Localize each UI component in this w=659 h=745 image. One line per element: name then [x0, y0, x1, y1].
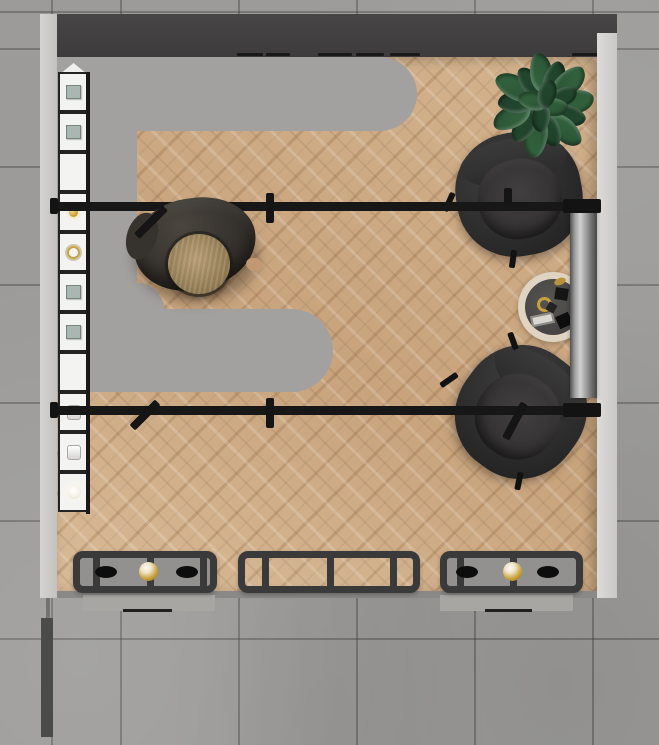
metal-console: [570, 207, 597, 398]
display-item-shoe: [176, 566, 198, 578]
display-table-divider: [327, 558, 334, 586]
exterior-wall-segment: [41, 618, 53, 737]
plant: [486, 50, 602, 156]
person: [132, 192, 262, 304]
hanging-garment-rail: [356, 53, 384, 56]
counter-top-arm: [57, 57, 417, 131]
shelf-display-box: [58, 352, 89, 392]
hanging-garment-rail: [318, 53, 352, 56]
track-spotlight-head: [504, 188, 512, 204]
display-item-shoe: [456, 566, 478, 578]
display-table-divider: [390, 558, 397, 586]
shelf-item-cylinder: [67, 445, 81, 460]
shelf-display-box: [58, 312, 89, 352]
shelf-item-lamp: [67, 485, 81, 499]
hanging-garment-rail: [390, 53, 420, 56]
display-item-gold-sphere: [503, 562, 522, 581]
hanging-garment-rail: [237, 53, 263, 56]
shelf-display-box: [58, 472, 89, 512]
person-head: [168, 234, 230, 294]
display-table-divider: [262, 558, 269, 586]
shelf-display-box: [58, 152, 89, 192]
rail-end-cap: [563, 403, 601, 417]
track-spotlight-head: [266, 193, 274, 223]
display-table: [440, 551, 583, 593]
shelf-display-box: [58, 232, 89, 272]
display-item-gold-sphere: [139, 562, 158, 581]
left-wall: [40, 14, 57, 598]
display-item-shoe: [95, 566, 117, 578]
shelf-frame-rail: [86, 72, 90, 514]
shelf-item-gold-ring: [67, 246, 80, 259]
shelf-display-box: [58, 112, 89, 152]
shelf-item-cube: [66, 85, 81, 99]
rail-end-cap: [50, 402, 58, 418]
threshold-line-left: [123, 609, 172, 612]
display-table-divider: [200, 558, 207, 586]
rail-end-cap: [563, 199, 601, 213]
display-table: [73, 551, 217, 593]
shelf-display-box: [58, 72, 89, 112]
shelf-display-box: [58, 432, 89, 472]
track-spotlight-head: [266, 398, 274, 428]
shelf-column: [58, 72, 89, 514]
shelf-display-box: [58, 272, 89, 312]
black-box-item: [554, 287, 569, 301]
shelf-item-cube: [66, 325, 81, 339]
display-table: [238, 551, 420, 593]
threshold-line-right: [485, 609, 532, 612]
exterior-wall-stub: [46, 598, 50, 619]
scene-canvas: [0, 0, 659, 745]
shelf-item-cube: [66, 125, 81, 139]
shelf-item-cube: [66, 285, 81, 299]
shelf-display-box: [58, 192, 89, 232]
counter-middle-arm: [57, 309, 333, 392]
hanging-garment-rail: [266, 53, 290, 56]
display-item-shoe: [537, 566, 559, 578]
rail-end-cap: [50, 198, 58, 214]
